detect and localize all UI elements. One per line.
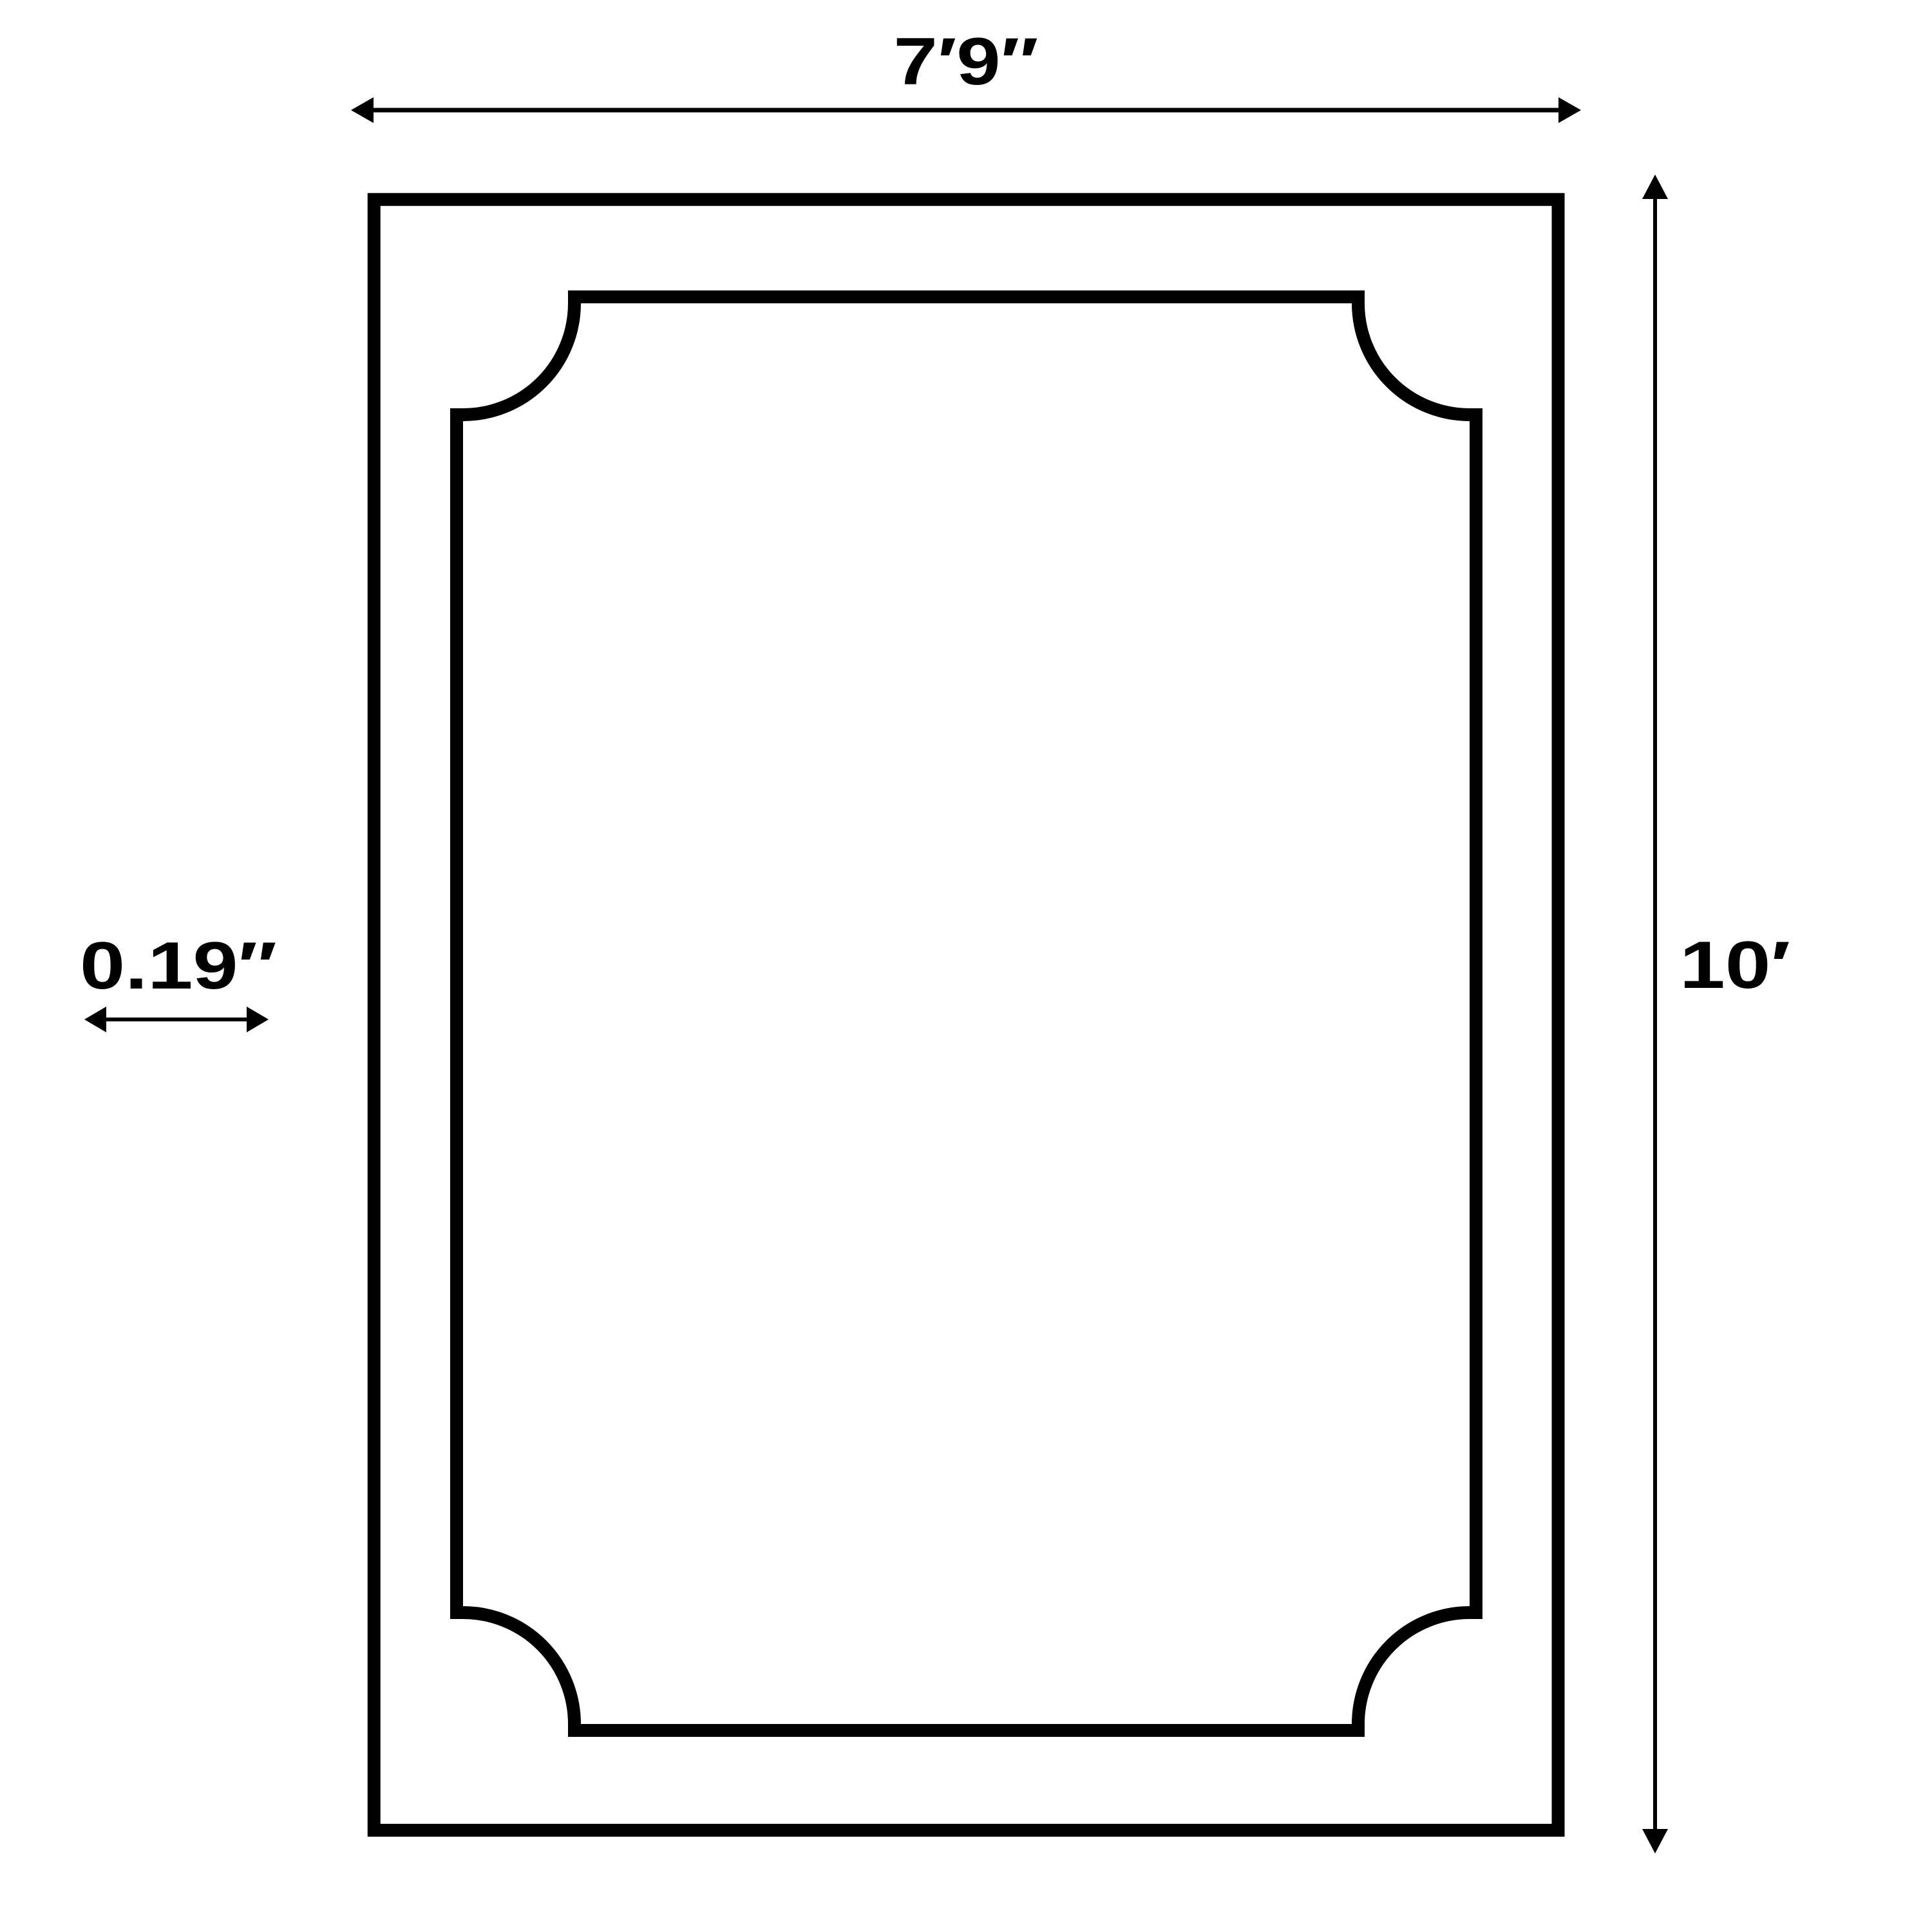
svg-text:10′: 10′	[1680, 928, 1790, 1003]
svg-text:0.19″: 0.19″	[80, 929, 277, 1003]
svg-text:7′9″: 7′9″	[894, 24, 1039, 99]
